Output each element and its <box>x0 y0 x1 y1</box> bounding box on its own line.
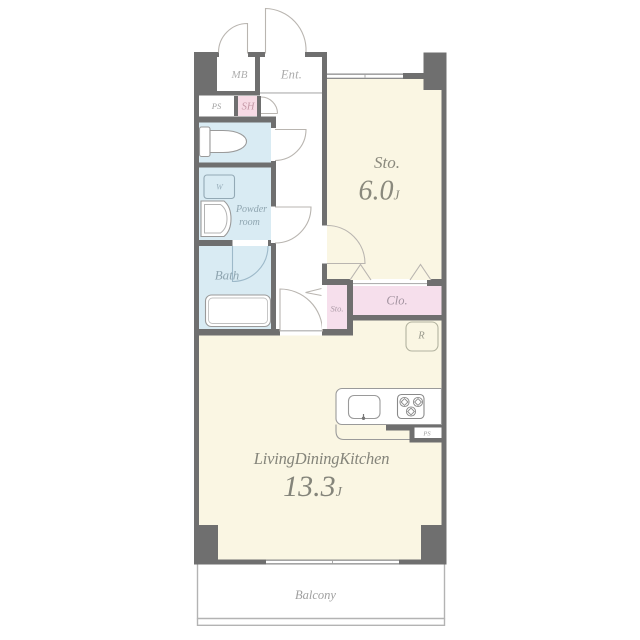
svg-text:room: room <box>239 217 260 228</box>
svg-text:R: R <box>417 331 425 342</box>
svg-text:PS: PS <box>422 431 431 438</box>
svg-text:13.3J: 13.3J <box>283 470 343 503</box>
svg-text:Bath: Bath <box>215 268 240 283</box>
svg-text:Powder: Powder <box>235 204 267 215</box>
svg-text:Clo.: Clo. <box>386 294 407 308</box>
svg-text:MB: MB <box>231 69 248 81</box>
svg-text:Ent.: Ent. <box>280 68 302 82</box>
svg-text:Balcony: Balcony <box>295 588 336 602</box>
svg-text:Sto.: Sto. <box>331 304 344 314</box>
svg-text:LivingDiningKitchen: LivingDiningKitchen <box>253 449 390 468</box>
svg-text:Sto.: Sto. <box>374 153 400 172</box>
svg-text:SH: SH <box>242 102 256 113</box>
svg-text:PS: PS <box>211 101 222 111</box>
